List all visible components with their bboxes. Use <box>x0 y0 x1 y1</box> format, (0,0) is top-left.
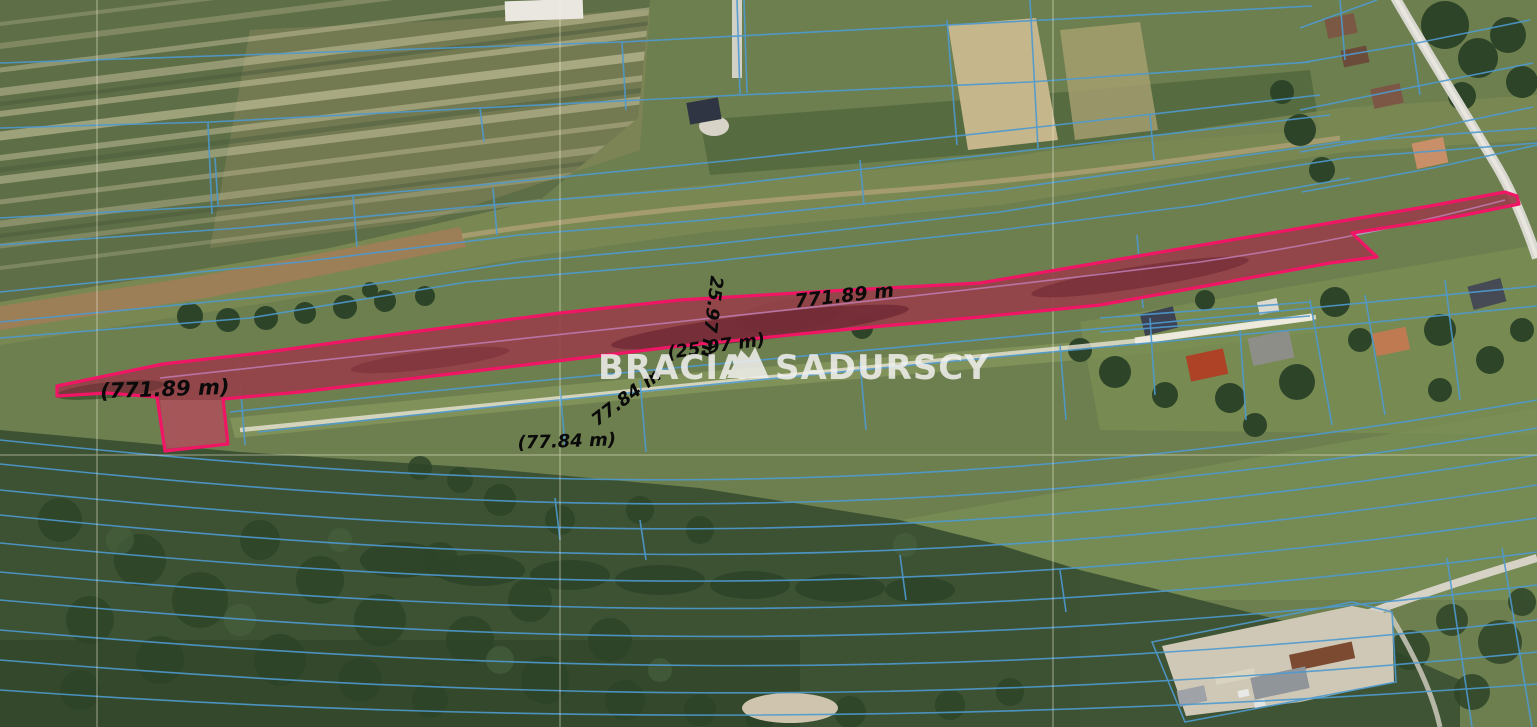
aerial-map-canvas: 771.89 m 25.97 m (25.97 m) (771.89 m) 77… <box>0 0 1537 727</box>
aerial-map-view: 771.89 m 25.97 m (25.97 m) (771.89 m) 77… <box>0 0 1537 727</box>
watermark-word2: SADURSCY <box>775 348 990 388</box>
building <box>505 0 584 21</box>
watermark-word1: BRACIA <box>598 348 746 388</box>
watermark: BRACIA SADURSCY <box>598 347 990 388</box>
label-cross-length-paren: (77.84 m) <box>517 429 616 453</box>
label-length-left-paren: (771.89 m) <box>100 375 230 404</box>
